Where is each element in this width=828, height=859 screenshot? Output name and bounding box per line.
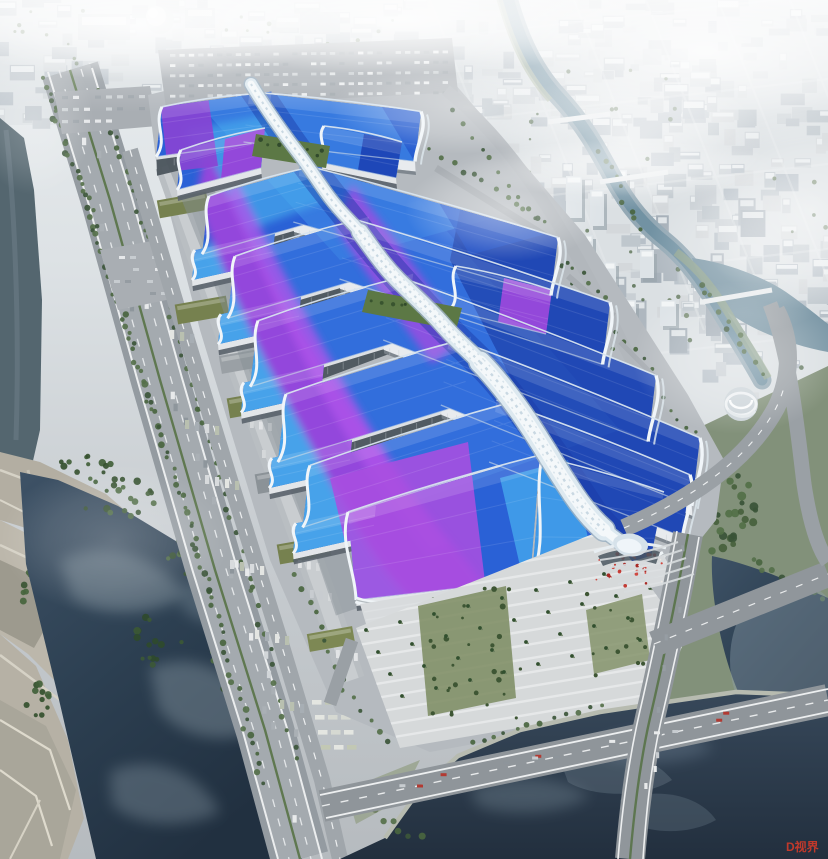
svg-text:D视界: D视界 — [786, 839, 819, 854]
